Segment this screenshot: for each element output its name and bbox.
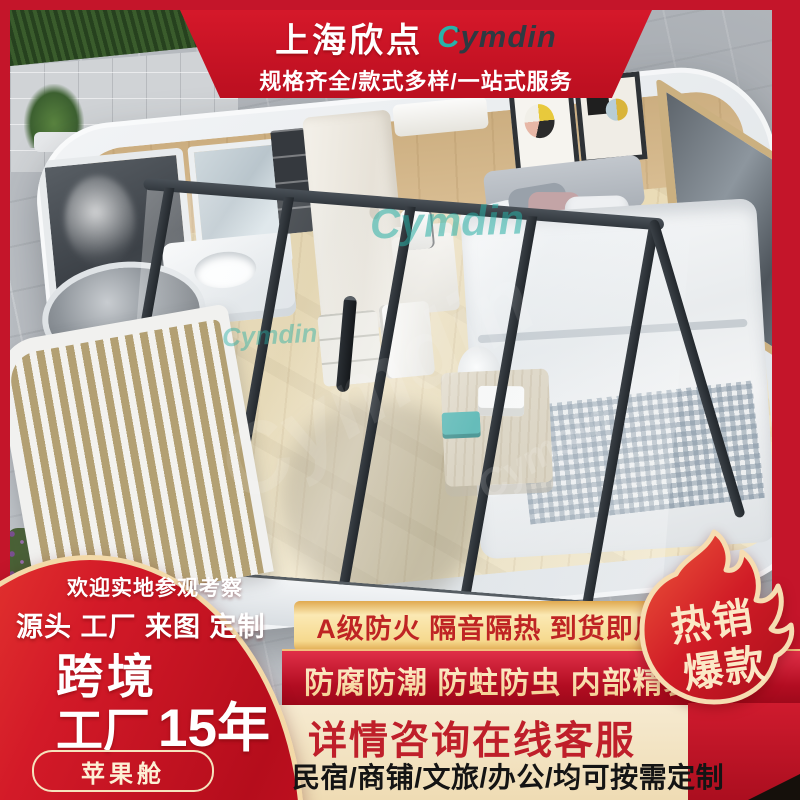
hot-sale-badge: 热销 爆款 [620,524,800,730]
frame-top [0,0,800,10]
banner-tagline: 规格齐全/款式多样/一站式服务 [259,64,572,96]
feature-fireproof: A级防火 隔音隔热 到货即用 [316,607,662,646]
watermark-logo-1: Cymdin [369,195,525,248]
badge-pill-label: 苹果舱 [81,754,165,789]
brand-name: 上海欣点 [275,13,423,62]
promo-image: Cymdin Cymdin Cymdin Cymdin 上海欣点 Cymdin … [0,0,800,800]
art-1 [523,103,556,140]
art-2b [605,98,629,122]
watermark-logo-2: Cymdin [221,318,318,354]
usage-text: 民宿/商铺/文旅/办公/均可按需定制 [292,756,724,796]
badge-welcome: 欢迎实地参观考察 [38,572,272,602]
flame-icon: 热销 爆款 [620,524,800,730]
brand-logo: Cymdin [437,19,557,55]
brand-row: 上海欣点 Cymdin [275,13,557,62]
top-banner: 上海欣点 Cymdin 规格齐全/款式多样/一站式服务 [180,10,652,98]
badge-pill: 苹果舱 [32,750,214,792]
